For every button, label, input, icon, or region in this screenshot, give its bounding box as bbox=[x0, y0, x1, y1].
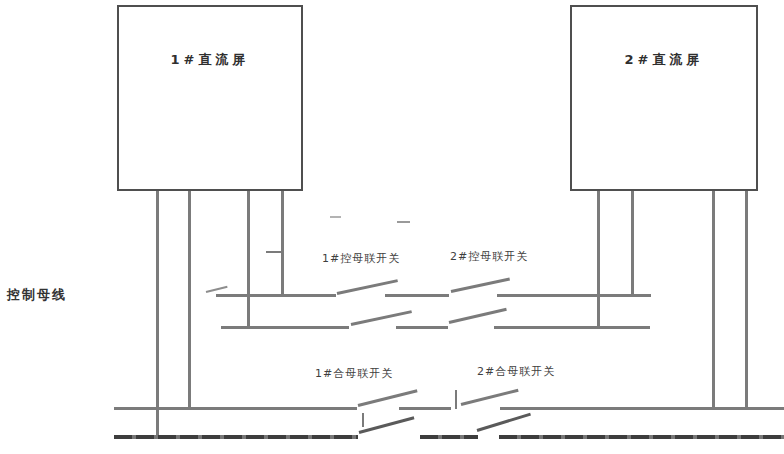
panel2-wire-to-closing-bus bbox=[712, 191, 715, 410]
close-tie-switch2-blade-lower bbox=[477, 413, 531, 432]
closing-bus-lower-seg2 bbox=[420, 435, 478, 439]
panel1-wire-to-closing-bus bbox=[156, 191, 159, 439]
close-tie-switch1-label: 1#合母联开关 bbox=[315, 366, 393, 381]
panel1-wire-to-control-bus-2 bbox=[281, 191, 284, 297]
close-tie-switch2-blade-upper bbox=[461, 389, 519, 406]
close-tie-switch1-blade-upper bbox=[358, 389, 418, 407]
close-tie-switch1-blade-lower bbox=[359, 416, 415, 434]
panel1-wire-to-control-bus bbox=[247, 191, 250, 329]
control-bus-lower-seg1 bbox=[221, 326, 349, 329]
dc-panel-1-box: 1#直流屏 bbox=[117, 5, 303, 191]
control-bus-label: 控制母线 bbox=[7, 286, 67, 304]
panel2-wire-to-control-bus bbox=[597, 191, 600, 329]
stray-mark-2 bbox=[330, 216, 341, 218]
control-bus-lower-seg2 bbox=[396, 326, 448, 329]
wire-tap-tick bbox=[266, 251, 283, 253]
stray-mark-1 bbox=[397, 221, 410, 223]
dc-panel-2-box: 2#直流屏 bbox=[570, 5, 758, 191]
close-tie-switch2-link-dash bbox=[455, 390, 457, 409]
control-bus-lower-seg3 bbox=[494, 326, 650, 329]
control-bus-upper-seg1 bbox=[216, 294, 336, 297]
closing-bus-lower-seg1 bbox=[114, 435, 358, 439]
closing-bus-upper-seg3 bbox=[500, 407, 784, 410]
ctrl-tie-switch2-blade-lower bbox=[449, 308, 507, 324]
close-tie-switch2-label: 2#合母联开关 bbox=[477, 364, 555, 379]
ctrl-tie-switch1-blade-lower bbox=[351, 310, 412, 326]
control-bus-upper-seg2 bbox=[385, 294, 449, 297]
ctrl-tie-switch2-label: 2#控母联开关 bbox=[450, 249, 528, 264]
closing-bus-upper-seg1 bbox=[114, 407, 357, 410]
ctrl-tie-switch1-blade-upper bbox=[337, 279, 398, 295]
panel1-wire-to-closing-bus-2 bbox=[188, 191, 191, 410]
control-bus-upper-seg3 bbox=[497, 294, 651, 297]
dc-system-diagram: 1#直流屏 2#直流屏 控制母线 1#控母联开关 2#控母联开关 1#合母联开关… bbox=[0, 0, 784, 454]
close-tie-switch1-link-dash bbox=[362, 413, 364, 427]
ctrl-tie-switch2-blade-upper bbox=[451, 278, 510, 293]
panel2-wire-to-closing-bus-2 bbox=[745, 191, 748, 410]
closing-bus-upper-seg2 bbox=[399, 407, 451, 410]
control-bus-left-hook bbox=[206, 286, 228, 293]
ctrl-tie-switch1-label: 1#控母联开关 bbox=[322, 251, 400, 266]
dc-panel-1-label: 1#直流屏 bbox=[171, 51, 250, 189]
panel2-wire-to-control-bus-2 bbox=[631, 191, 634, 297]
dc-panel-2-label: 2#直流屏 bbox=[625, 51, 704, 189]
closing-bus-lower-seg3 bbox=[499, 435, 784, 439]
